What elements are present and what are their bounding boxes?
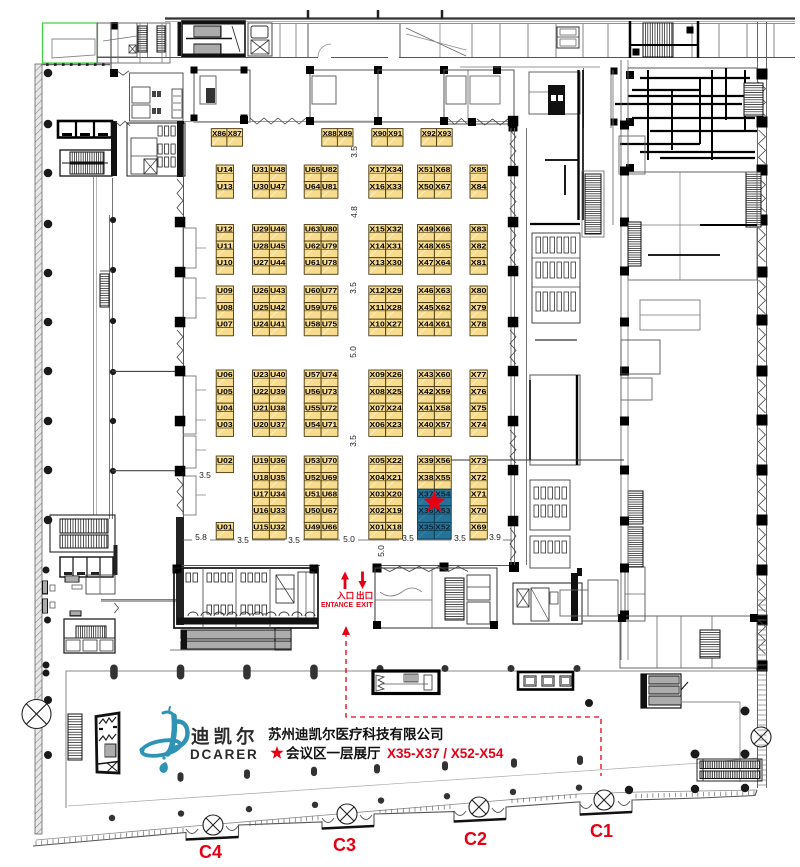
svg-text:U58: U58 (305, 319, 320, 328)
svg-text:X80: X80 (471, 286, 487, 295)
svg-text:5.0: 5.0 (348, 346, 358, 358)
svg-text:X10: X10 (370, 319, 385, 328)
svg-text:U75: U75 (322, 319, 338, 328)
svg-text:3.5: 3.5 (402, 533, 414, 543)
svg-text:X60: X60 (435, 370, 450, 379)
svg-text:X26: X26 (386, 370, 401, 379)
svg-text:U53: U53 (305, 456, 320, 465)
svg-text:U77: U77 (322, 286, 337, 295)
svg-text:X68: X68 (435, 165, 450, 174)
svg-text:X91: X91 (388, 129, 403, 138)
svg-text:U60: U60 (305, 286, 320, 295)
svg-text:U64: U64 (305, 182, 321, 191)
svg-text:U33: U33 (270, 506, 285, 515)
svg-text:U34: U34 (270, 489, 286, 498)
svg-text:U17: U17 (253, 489, 268, 498)
svg-text:U73: U73 (322, 387, 337, 396)
svg-text:U52: U52 (305, 473, 320, 482)
svg-text:X75: X75 (471, 403, 488, 412)
svg-text:X62: X62 (435, 303, 450, 312)
svg-text:X29: X29 (386, 286, 401, 295)
svg-text:X38: X38 (418, 473, 433, 482)
svg-text:U56: U56 (305, 387, 320, 396)
svg-text:U08: U08 (217, 303, 233, 312)
svg-text:U32: U32 (270, 523, 285, 532)
svg-text:U74: U74 (322, 370, 338, 379)
svg-text:X06: X06 (370, 420, 385, 429)
svg-text:X22: X22 (386, 456, 401, 465)
svg-text:X46: X46 (418, 286, 433, 295)
svg-text:X07: X07 (370, 403, 385, 412)
svg-text:X66: X66 (435, 225, 450, 234)
svg-text:X65: X65 (435, 241, 451, 250)
svg-text:3.5: 3.5 (454, 533, 466, 543)
svg-text:X15: X15 (370, 225, 386, 234)
svg-text:X63: X63 (435, 286, 450, 295)
svg-text:X64: X64 (435, 258, 451, 267)
svg-text:U45: U45 (270, 241, 286, 250)
svg-text:X82: X82 (471, 241, 487, 250)
svg-text:U23: U23 (253, 370, 268, 379)
svg-text:U26: U26 (253, 286, 268, 295)
svg-text:X40: X40 (418, 420, 433, 429)
svg-text:X85: X85 (471, 165, 488, 174)
svg-text:U05: U05 (217, 387, 234, 396)
svg-text:U11: U11 (217, 241, 234, 250)
svg-text:会议区一层展厅: 会议区一层展厅 (286, 745, 381, 761)
svg-text:5.8: 5.8 (195, 532, 207, 542)
svg-text:3.5: 3.5 (349, 146, 359, 158)
svg-text:5.0: 5.0 (343, 534, 355, 544)
svg-text:X58: X58 (435, 403, 450, 412)
svg-text:U25: U25 (253, 303, 269, 312)
svg-text:X04: X04 (370, 473, 386, 482)
svg-text:X61: X61 (435, 319, 451, 328)
svg-text:X51: X51 (418, 165, 434, 174)
svg-text:X34: X34 (386, 165, 402, 174)
svg-text:X56: X56 (435, 456, 450, 465)
svg-text:X79: X79 (471, 303, 487, 312)
svg-text:X73: X73 (471, 456, 487, 465)
svg-text:U39: U39 (270, 387, 285, 396)
svg-text:X39: X39 (418, 456, 433, 465)
svg-text:U19: U19 (253, 456, 268, 465)
svg-text:X77: X77 (471, 370, 487, 379)
svg-text:C4: C4 (199, 842, 222, 862)
svg-text:U72: U72 (322, 403, 337, 412)
svg-text:U78: U78 (322, 258, 337, 267)
svg-text:X31: X31 (386, 241, 402, 250)
svg-text:X55: X55 (435, 473, 451, 482)
svg-text:X81: X81 (471, 258, 488, 267)
svg-text:U63: U63 (305, 225, 320, 234)
svg-text:X69: X69 (471, 523, 487, 532)
svg-text:U22: U22 (253, 387, 268, 396)
svg-text:3.9: 3.9 (489, 532, 501, 542)
svg-text:X30: X30 (386, 258, 401, 267)
svg-text:X23: X23 (386, 420, 401, 429)
svg-text:X35: X35 (418, 523, 434, 532)
svg-text:X89: X89 (338, 129, 352, 138)
svg-text:X24: X24 (386, 403, 402, 412)
svg-text:3.5: 3.5 (348, 435, 358, 447)
svg-text:U03: U03 (217, 420, 233, 429)
svg-text:迪凯尔: 迪凯尔 (191, 726, 259, 747)
svg-text:X92: X92 (422, 129, 436, 138)
svg-text:入口: 入口 (337, 591, 354, 601)
svg-text:X37: X37 (418, 489, 433, 498)
svg-text:3.5: 3.5 (199, 470, 211, 480)
svg-text:U59: U59 (305, 303, 320, 312)
svg-text:U27: U27 (253, 258, 268, 267)
svg-text:U02: U02 (217, 456, 233, 465)
svg-text:U68: U68 (322, 489, 337, 498)
svg-text:X28: X28 (386, 303, 401, 312)
svg-text:X14: X14 (370, 241, 386, 250)
svg-text:X02: X02 (370, 506, 385, 515)
svg-text:X71: X71 (471, 489, 488, 498)
svg-text:U42: U42 (270, 303, 285, 312)
svg-text:3.5: 3.5 (288, 535, 300, 545)
svg-text:X86: X86 (212, 129, 226, 138)
svg-text:U37: U37 (270, 420, 285, 429)
svg-text:X78: X78 (471, 319, 487, 328)
svg-text:U82: U82 (322, 165, 337, 174)
svg-text:U16: U16 (253, 506, 268, 515)
svg-text:X43: X43 (418, 370, 433, 379)
svg-text:U49: U49 (305, 523, 320, 532)
svg-text:X49: X49 (418, 225, 433, 234)
svg-text:X12: X12 (370, 286, 385, 295)
svg-text:X33: X33 (386, 182, 401, 191)
svg-text:U29: U29 (253, 225, 268, 234)
svg-text:U46: U46 (270, 225, 285, 234)
svg-text:U80: U80 (322, 225, 337, 234)
svg-text:X44: X44 (418, 319, 434, 328)
svg-text:U54: U54 (305, 420, 321, 429)
svg-text:X42: X42 (418, 387, 433, 396)
svg-text:出口: 出口 (356, 590, 373, 601)
svg-text:U18: U18 (253, 473, 268, 482)
svg-text:X03: X03 (370, 489, 385, 498)
svg-text:X87: X87 (228, 129, 242, 138)
svg-text:U30: U30 (253, 182, 268, 191)
svg-text:X93: X93 (437, 129, 451, 138)
svg-text:苏州迪凯尔医疗科技有限公司: 苏州迪凯尔医疗科技有限公司 (268, 726, 444, 742)
svg-text:X16: X16 (370, 182, 385, 191)
svg-text:U10: U10 (217, 258, 233, 267)
svg-text:X50: X50 (418, 182, 433, 191)
svg-text:X67: X67 (435, 182, 450, 191)
svg-text:3.5: 3.5 (348, 282, 358, 294)
svg-text:U28: U28 (253, 241, 268, 250)
svg-text:X45: X45 (418, 303, 434, 312)
svg-text:U43: U43 (270, 286, 285, 295)
svg-text:C1: C1 (590, 821, 613, 841)
svg-text:U09: U09 (217, 286, 233, 295)
svg-text:U69: U69 (322, 473, 337, 482)
svg-text:X18: X18 (386, 523, 401, 532)
svg-text:X19: X19 (386, 506, 401, 515)
svg-text:X41: X41 (418, 403, 434, 412)
svg-text:U50: U50 (305, 506, 320, 515)
svg-text:C3: C3 (333, 835, 356, 855)
svg-text:5.0: 5.0 (376, 545, 386, 557)
svg-text:U67: U67 (322, 506, 337, 515)
svg-text:3.5: 3.5 (237, 535, 249, 545)
svg-text:U81: U81 (322, 182, 338, 191)
svg-text:X59: X59 (435, 387, 450, 396)
svg-text:X88: X88 (323, 129, 337, 138)
svg-text:U14: U14 (217, 165, 234, 174)
svg-text:U70: U70 (322, 456, 337, 465)
svg-text:U01: U01 (217, 523, 234, 532)
svg-text:U76: U76 (322, 303, 337, 312)
svg-text:X17: X17 (370, 165, 385, 174)
svg-text:U57: U57 (305, 370, 320, 379)
svg-text:U24: U24 (253, 319, 269, 328)
svg-text:X01: X01 (370, 523, 386, 532)
svg-text:X76: X76 (471, 387, 487, 396)
svg-text:U65: U65 (305, 165, 321, 174)
svg-text:X52: X52 (435, 523, 450, 532)
svg-text:X83: X83 (471, 225, 487, 234)
svg-text:X84: X84 (471, 182, 488, 191)
svg-text:U61: U61 (305, 258, 321, 267)
svg-text:U21: U21 (253, 403, 269, 412)
svg-text:U12: U12 (217, 225, 233, 234)
svg-text:X08: X08 (370, 387, 385, 396)
svg-text:U36: U36 (270, 456, 285, 465)
svg-text:X35-X37 / X52-X54: X35-X37 / X52-X54 (387, 746, 504, 761)
svg-text:U71: U71 (322, 420, 338, 429)
svg-text:U51: U51 (305, 489, 321, 498)
svg-text:X05: X05 (370, 456, 386, 465)
svg-text:X57: X57 (435, 420, 450, 429)
svg-text:X48: X48 (418, 241, 433, 250)
svg-text:ENTANCE: ENTANCE (321, 602, 353, 609)
svg-text:X47: X47 (418, 258, 433, 267)
svg-text:DCARER: DCARER (190, 747, 259, 762)
svg-text:X13: X13 (370, 258, 385, 267)
svg-text:X11: X11 (370, 303, 386, 312)
svg-text:X27: X27 (386, 319, 401, 328)
svg-text:U38: U38 (270, 403, 285, 412)
svg-text:U48: U48 (270, 165, 285, 174)
svg-text:U41: U41 (270, 319, 286, 328)
svg-text:U15: U15 (253, 523, 269, 532)
svg-text:U79: U79 (322, 241, 337, 250)
svg-text:U31: U31 (253, 165, 269, 174)
svg-text:X54: X54 (435, 489, 451, 498)
svg-text:X25: X25 (386, 387, 402, 396)
svg-text:U20: U20 (253, 420, 268, 429)
svg-text:U44: U44 (270, 258, 286, 267)
svg-text:X74: X74 (471, 420, 488, 429)
svg-text:X32: X32 (386, 225, 401, 234)
svg-text:X09: X09 (370, 370, 385, 379)
svg-text:4.8: 4.8 (349, 206, 359, 218)
svg-text:EXIT: EXIT (356, 602, 374, 609)
svg-text:U55: U55 (305, 403, 321, 412)
svg-text:U40: U40 (270, 370, 285, 379)
svg-text:X70: X70 (471, 506, 487, 515)
svg-text:U07: U07 (217, 319, 233, 328)
svg-text:X72: X72 (471, 473, 487, 482)
svg-text:X20: X20 (386, 489, 401, 498)
svg-text:X21: X21 (386, 473, 402, 482)
svg-text:U06: U06 (217, 370, 233, 379)
svg-text:U04: U04 (217, 403, 234, 412)
svg-text:C2: C2 (464, 829, 487, 849)
svg-text:U47: U47 (270, 182, 285, 191)
svg-text:U13: U13 (217, 182, 233, 191)
svg-text:U35: U35 (270, 473, 286, 482)
svg-text:X90: X90 (373, 129, 387, 138)
svg-text:U62: U62 (305, 241, 320, 250)
svg-text:U66: U66 (322, 523, 337, 532)
